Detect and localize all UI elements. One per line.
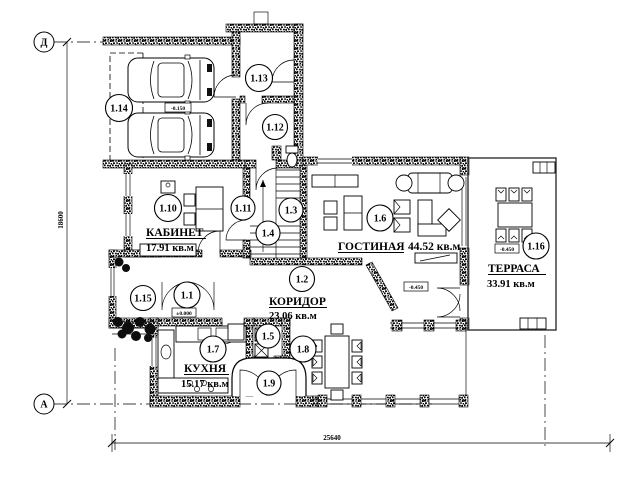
- room-number-1-3: 1.3: [279, 198, 303, 222]
- room-number-1-6: 1.6: [367, 205, 393, 231]
- dimension-bottom: 25640: [108, 335, 614, 452]
- elevation-living: -0.450: [404, 282, 428, 291]
- room-number-1-13: 1.13: [246, 65, 273, 92]
- window-kitchen-left: [149, 338, 159, 366]
- window-living-top: [318, 156, 352, 166]
- svg-text:23.06 кв.м: 23.06 кв.м: [269, 311, 317, 322]
- svg-text:1.8: 1.8: [297, 345, 310, 356]
- svg-text:Д: Д: [41, 38, 48, 49]
- terrace-step-top: [533, 162, 555, 173]
- svg-text:КАБИНЕТ: КАБИНЕТ: [146, 227, 204, 239]
- door-terrace-double: [437, 288, 460, 317]
- terrace-furniture: [496, 188, 532, 242]
- elevation-terrace: -0.450: [495, 244, 519, 253]
- svg-text:44.52 кв.м: 44.52 кв.м: [408, 241, 460, 253]
- svg-text:1.14: 1.14: [110, 104, 128, 115]
- dining-furniture: [312, 324, 362, 400]
- svg-text:ГОСТИНАЯ: ГОСТИНАЯ: [338, 241, 405, 253]
- room-number-1-8: 1.8: [290, 336, 316, 362]
- car-2: [128, 110, 214, 160]
- room-number-1-11: 1.11: [231, 196, 255, 220]
- floor-plan-sheet: Д А 18600 25640: [0, 0, 640, 480]
- svg-text:-0.150: -0.150: [171, 106, 185, 112]
- door-112-hall: [256, 168, 278, 190]
- label-kuhnya: КУХНЯ 15.17 кв.м: [181, 363, 229, 390]
- door-1-11: [226, 220, 246, 240]
- svg-text:18600: 18600: [57, 211, 65, 229]
- svg-text:25640: 25640: [323, 434, 341, 442]
- car-1: [128, 55, 214, 105]
- svg-text:±0.000: ±0.000: [176, 311, 192, 317]
- svg-text:1.13: 1.13: [250, 74, 268, 85]
- svg-text:1.7: 1.7: [207, 345, 220, 356]
- svg-text:33.91 кв.м: 33.91 кв.м: [487, 279, 535, 290]
- room-number-1-5: 1.5: [256, 324, 280, 348]
- room-number-1-7: 1.7: [200, 336, 226, 362]
- svg-text:15.17 кв.м: 15.17 кв.м: [181, 379, 229, 390]
- room-number-1-10: 1.10: [155, 195, 182, 222]
- window-bay-left: [108, 268, 117, 296]
- svg-text:1.12: 1.12: [266, 123, 284, 134]
- room-number-1-4: 1.4: [256, 221, 280, 245]
- room-number-1-12: 1.12: [263, 115, 288, 140]
- room-number-1-2: 1.2: [290, 267, 315, 292]
- svg-text:1.5: 1.5: [262, 332, 275, 343]
- floor-plan-drawing: Д А 18600 25640: [0, 0, 640, 480]
- label-terrasa: ТЕРРАСА 33.91 кв.м: [487, 263, 546, 290]
- axis-marker-top: Д: [34, 32, 104, 52]
- terrace-step-bottom: [520, 318, 546, 329]
- svg-text:КУХНЯ: КУХНЯ: [184, 363, 227, 375]
- elevation-garage: -0.150: [165, 103, 191, 112]
- svg-text:1.6: 1.6: [374, 214, 387, 225]
- room-number-1-1: 1.1: [174, 282, 200, 308]
- svg-text:-0.450: -0.450: [409, 285, 423, 291]
- svg-text:17.91 кв.м: 17.91 кв.м: [146, 243, 194, 254]
- label-koridor: КОРИДОР 23.06 кв.м: [269, 296, 327, 322]
- svg-text:1.9: 1.9: [263, 379, 276, 390]
- door-113-right: [272, 60, 294, 82]
- svg-text:ТЕРРАСА: ТЕРРАСА: [488, 263, 540, 275]
- svg-text:1.4: 1.4: [262, 229, 275, 240]
- svg-text:-0.450: -0.450: [500, 247, 514, 253]
- svg-text:1.11: 1.11: [235, 204, 252, 215]
- colonnade-band: [390, 320, 468, 331]
- label-gostinaya: ГОСТИНАЯ 44.52 кв.м: [338, 241, 460, 253]
- svg-text:1.16: 1.16: [527, 242, 545, 253]
- svg-text:1.10: 1.10: [159, 204, 177, 215]
- svg-text:1.15: 1.15: [134, 294, 152, 305]
- room-number-1-14: 1.14: [106, 95, 133, 122]
- room-number-1-15: 1.15: [131, 286, 156, 311]
- elevation-entry: ±0.000: [172, 308, 196, 317]
- svg-text:1.1: 1.1: [181, 291, 194, 302]
- svg-text:А: А: [40, 400, 48, 411]
- door-garage-113: [214, 75, 236, 97]
- svg-text:1.3: 1.3: [285, 206, 298, 217]
- svg-text:1.2: 1.2: [296, 275, 309, 286]
- svg-text:КОРИДОР: КОРИДОР: [269, 296, 326, 308]
- dimension-left: 18600: [57, 38, 71, 408]
- room-number-1-9: 1.9: [257, 371, 281, 395]
- room-number-1-16: 1.16: [523, 233, 549, 259]
